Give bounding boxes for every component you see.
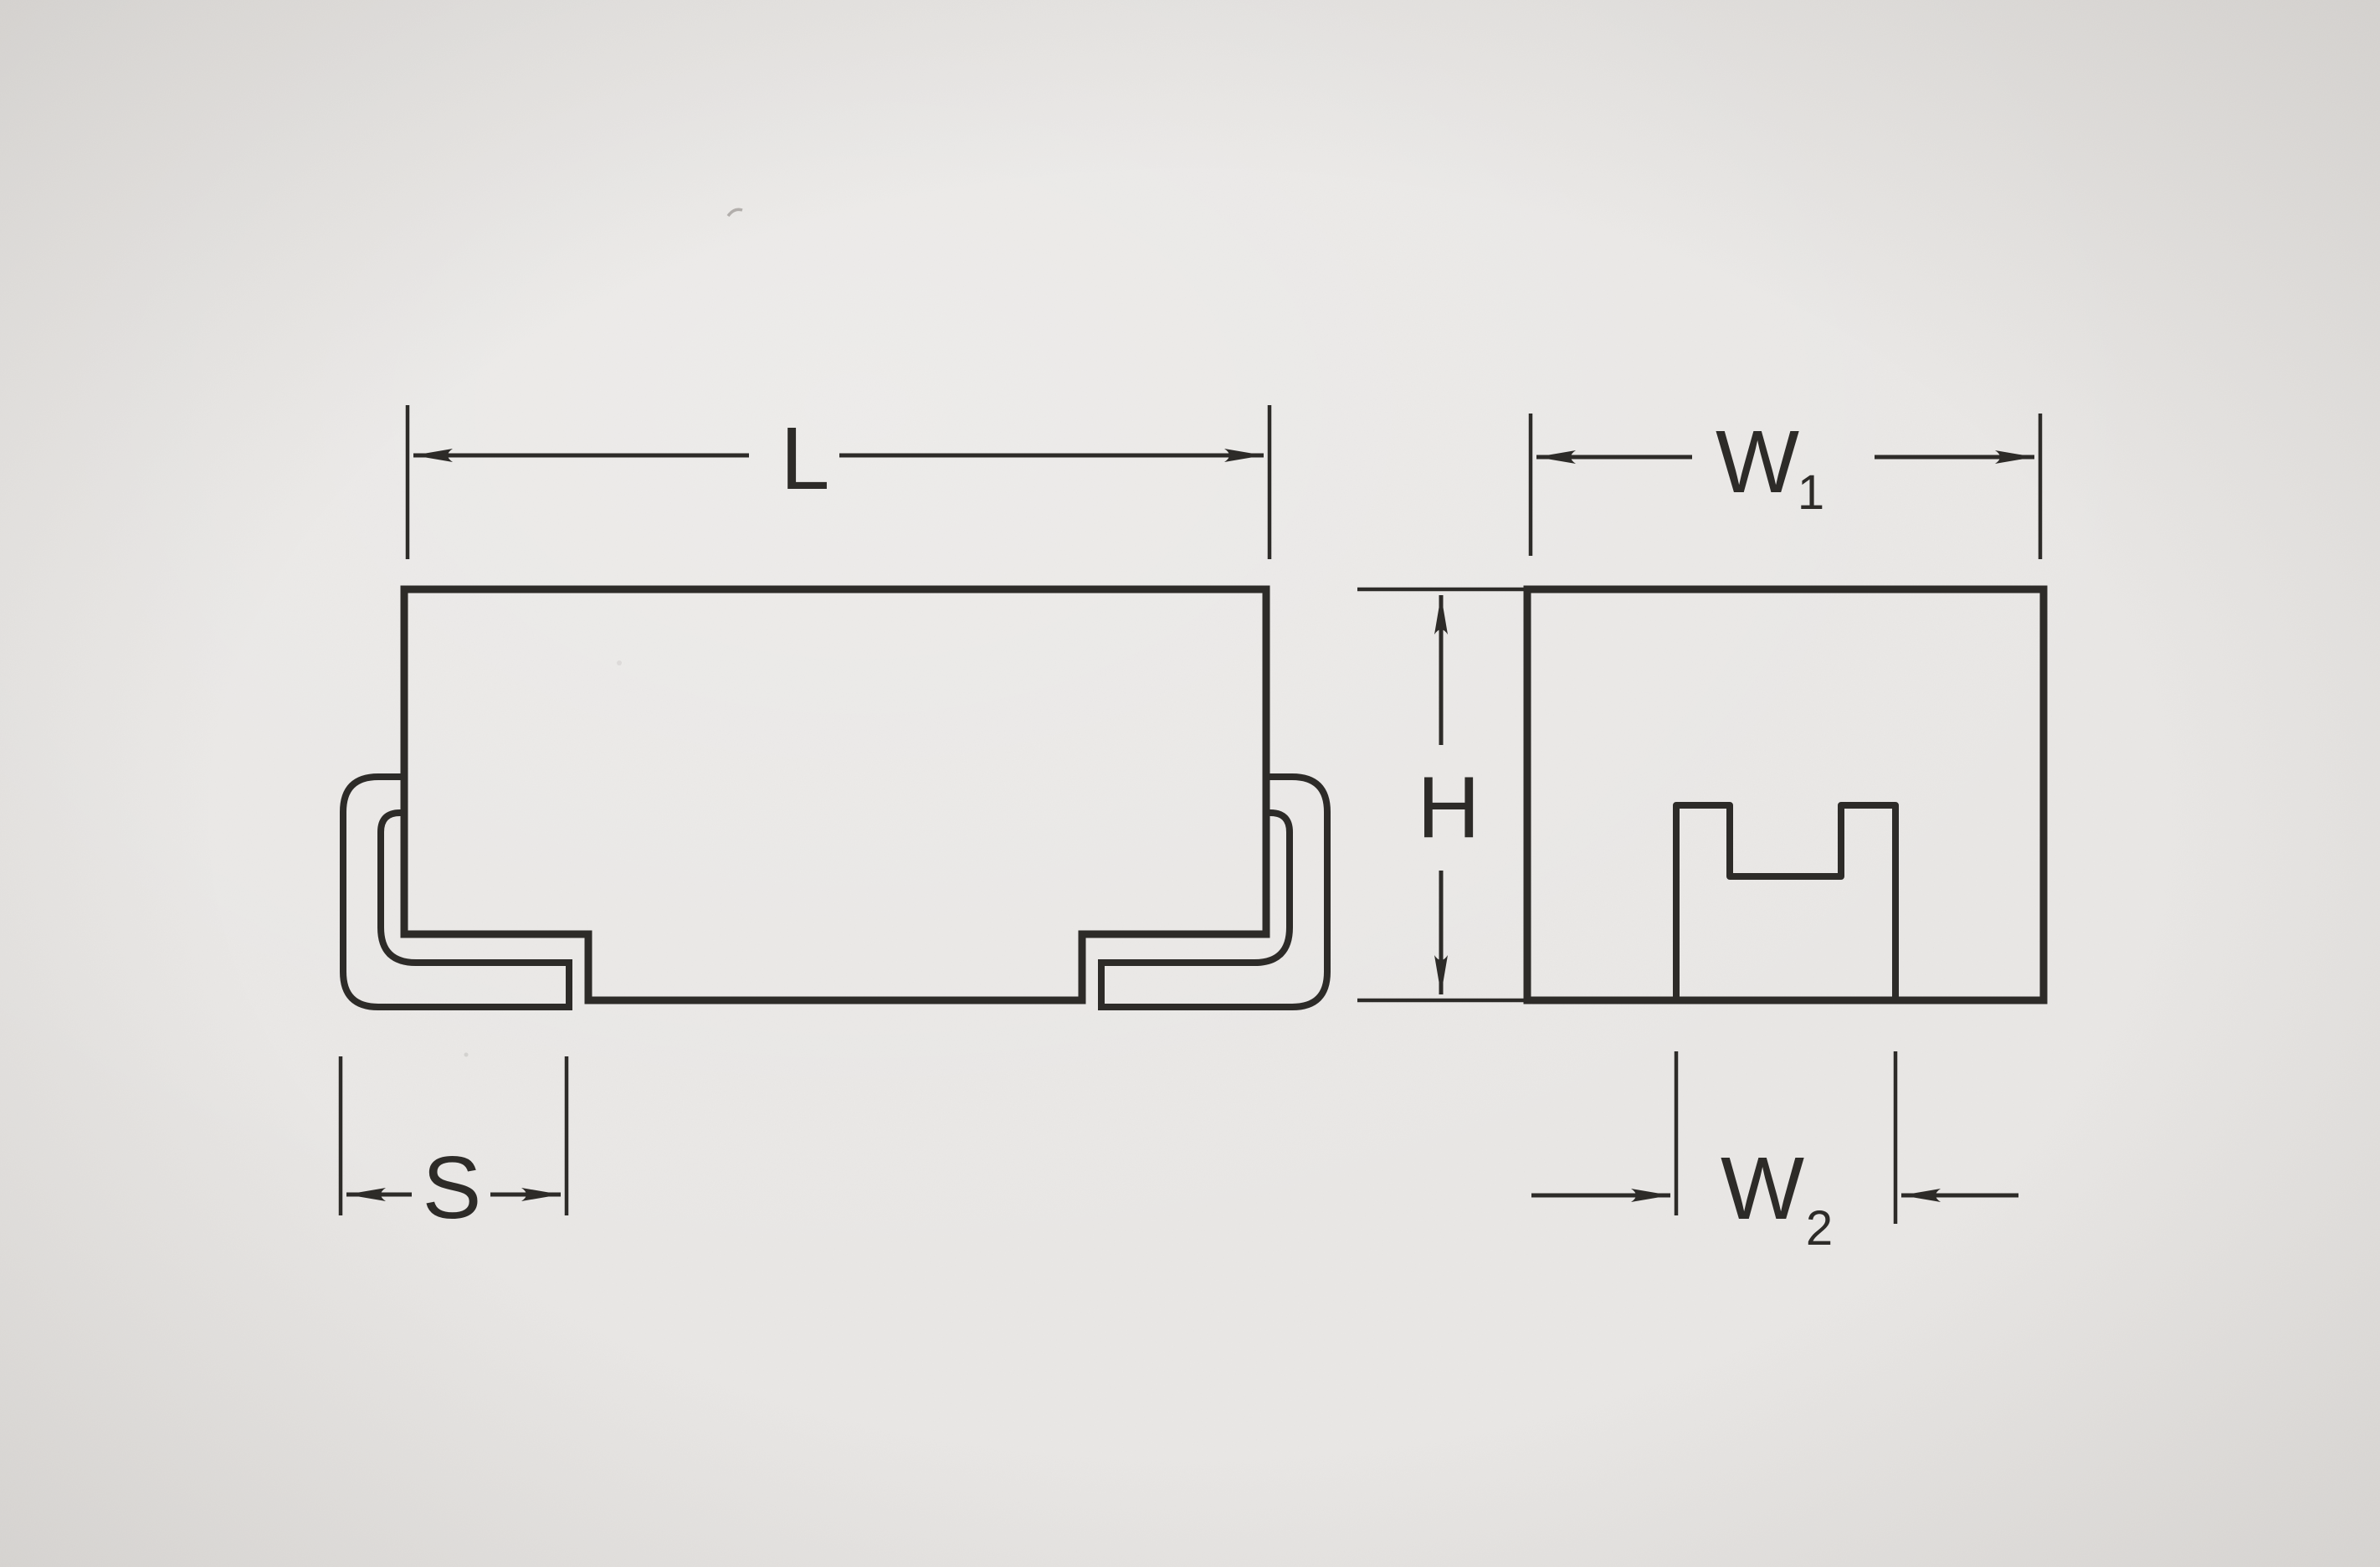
paper-speck [617,660,622,665]
paper-speck [464,1053,469,1057]
scanned-drawing-page: L S W 1 H W 2 [0,0,2380,1567]
dim-W1-label: W [1716,413,1799,511]
dim-W2-label-subscript: 2 [1806,1201,1833,1256]
dim-L-label: L [781,409,830,508]
dim-W1-label-subscript: 1 [1798,465,1824,520]
package-dimension-drawing: L S W 1 H W 2 [0,0,2380,1567]
dim-H-label: H [1417,759,1480,856]
dim-W2-label: W [1721,1139,1804,1238]
dim-S-label: S [423,1138,482,1237]
